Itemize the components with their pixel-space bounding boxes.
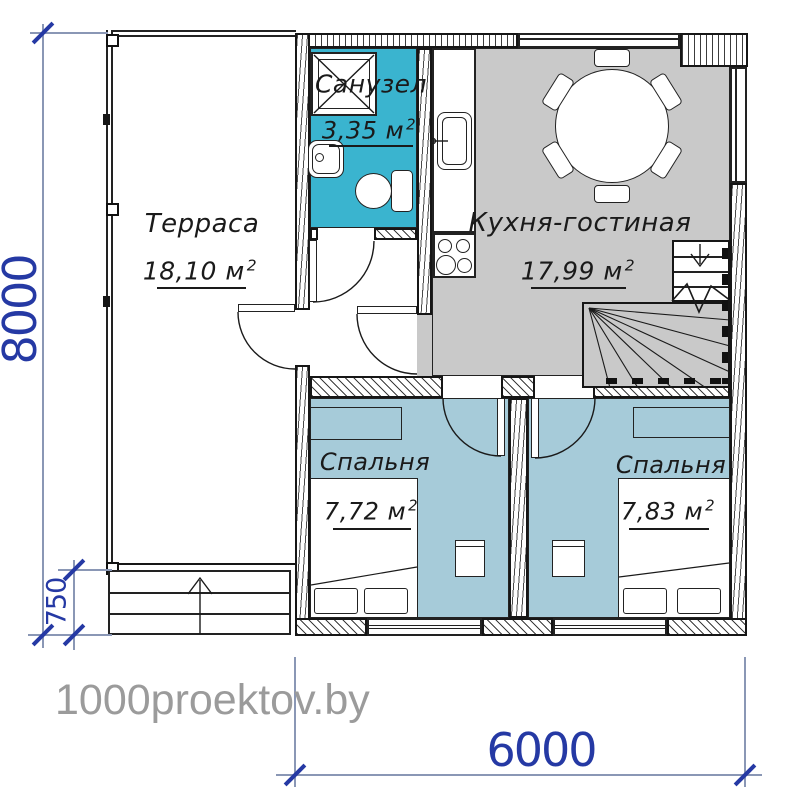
- room-area-bedroom-2: 7,83 м2: [621, 497, 715, 526]
- area-underline: [333, 528, 411, 530]
- stove-burner: [436, 255, 456, 275]
- top-wall-left-segment: [295, 33, 518, 48]
- nightstand-top-edge: [553, 546, 584, 547]
- bathroom-sink-faucet-icon: [315, 153, 324, 162]
- terrace-wall-mark: [103, 114, 110, 125]
- stairs-winder-fan: [582, 302, 730, 388]
- room-label-terrace: Терраса: [145, 209, 260, 239]
- window-glazing-line: [555, 625, 665, 629]
- pillow-icon: [623, 588, 667, 614]
- chair-icon: [594, 49, 630, 67]
- door-leaf-bedroom-1: [497, 398, 505, 456]
- wardrobe-bedroom-1: [310, 407, 402, 440]
- door-leaf-bathroom: [309, 240, 317, 302]
- pillow-icon: [314, 588, 358, 614]
- stove-burner: [457, 258, 472, 273]
- door-leaf-bedroom-2: [531, 398, 539, 458]
- step-edge: [110, 592, 289, 594]
- bathroom-bottom-wall: [374, 228, 417, 240]
- room-label-bathroom: Санузел: [315, 70, 427, 99]
- window-bedroom-1: [367, 618, 482, 636]
- room-label-bedroom-2: Спальня: [616, 451, 726, 479]
- stove-burner: [438, 239, 452, 253]
- extension-line: [744, 657, 746, 787]
- area-underline: [629, 528, 709, 530]
- dimension-value-6000: 6000: [486, 723, 595, 777]
- window-right: [730, 67, 747, 183]
- bedrooms-top-wall-segment-1: [310, 376, 443, 398]
- room-label-bedroom-1: Спальня: [320, 448, 430, 476]
- pillow-icon: [364, 588, 408, 614]
- watermark: 1000proektov.by: [55, 676, 370, 725]
- stair-tread-edge: [674, 271, 728, 273]
- top-wall-right-corner: [680, 33, 748, 67]
- door-arc-bathroom: [313, 241, 374, 302]
- kitchen-sink-icon: [437, 112, 472, 170]
- nightstand-top-edge: [456, 546, 484, 547]
- kitchen-floor-doorway-strip: [417, 315, 432, 376]
- right-wall: [730, 183, 747, 636]
- bedrooms-top-wall-segment-2: [501, 376, 535, 398]
- wardrobe-bedroom-2: [633, 407, 730, 438]
- toilet-bowl-icon: [355, 173, 392, 209]
- nightstand-icon: [552, 540, 585, 577]
- extension-line: [58, 569, 112, 571]
- bottom-wall-segment-1: [295, 618, 367, 636]
- bottom-wall-segment-3: [667, 618, 747, 636]
- room-area-bathroom: 3,35 м2: [322, 116, 416, 145]
- toilet-tank-icon: [391, 170, 413, 212]
- window-bedroom-2: [553, 618, 667, 636]
- terrace-entry-steps: [108, 570, 291, 635]
- room-area-terrace: 18,10 м2: [143, 257, 257, 286]
- terrace-post-icon: [106, 34, 119, 47]
- floor-plan: Терраса 18,10 м2 Санузел 3,35 м2 Кухня-г…: [0, 0, 800, 805]
- door-leaf-kitchen: [357, 306, 417, 314]
- step-edge: [110, 613, 289, 615]
- door-arc-kitchen: [357, 314, 417, 374]
- left-wall-lower: [295, 365, 310, 636]
- area-underline: [329, 145, 413, 147]
- stove-burner: [456, 239, 470, 253]
- bedroom-divider-wall: [509, 398, 528, 618]
- area-underline: [157, 287, 246, 289]
- dimension-value-750: 750: [42, 578, 73, 627]
- stair-tread-edge: [674, 256, 728, 258]
- stair-tread-edge: [674, 286, 728, 288]
- terrace-top-wall: [106, 30, 296, 37]
- room-label-kitchen-living: Кухня-гостиная: [469, 208, 692, 238]
- bottom-wall-segment-2: [482, 618, 553, 636]
- terrace-wall-mark: [103, 296, 110, 307]
- room-area-kitchen-living: 17,99 м2: [521, 257, 635, 286]
- window-glazing-line: [735, 69, 737, 181]
- room-area-bedroom-1: 7,72 м2: [324, 497, 418, 526]
- sink-basin: [442, 117, 467, 165]
- bathroom-door-jamb: [310, 228, 318, 240]
- terrace-bottom-edge: [106, 563, 296, 565]
- window-glazing-line: [369, 625, 480, 629]
- window-top: [518, 33, 680, 48]
- stairs-straight-flight: [672, 240, 730, 302]
- chair-icon: [594, 185, 630, 203]
- window-glazing-line: [520, 38, 678, 40]
- pillow-icon: [677, 588, 721, 614]
- dimension-value-8000: 8000: [0, 255, 47, 364]
- nightstand-icon: [455, 540, 485, 577]
- door-arc-entrance: [238, 312, 295, 369]
- area-underline: [531, 287, 626, 289]
- terrace-post-icon: [106, 203, 119, 216]
- door-leaf-entrance: [238, 304, 295, 312]
